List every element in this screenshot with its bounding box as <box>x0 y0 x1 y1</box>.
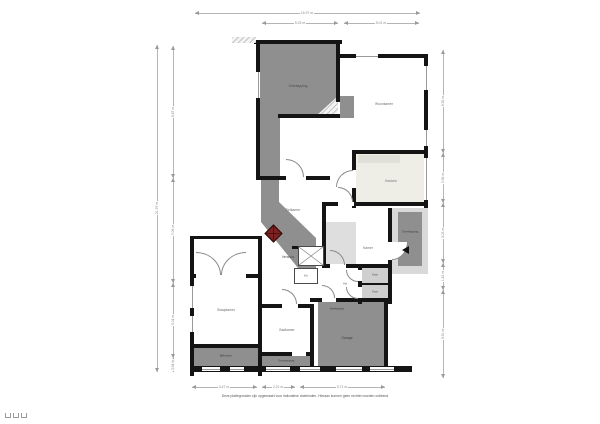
dim-label-left-4: 0.94 m <box>171 359 174 371</box>
room-label-overkapping-bottom: Overkapping <box>278 360 294 363</box>
overkapping-top-area <box>260 44 338 116</box>
wall-segment <box>310 304 314 370</box>
dim-label-bottom-2: 2.22 m <box>272 385 284 388</box>
window <box>424 130 428 146</box>
logo-mark-glyph <box>5 413 11 418</box>
window <box>190 286 194 308</box>
double-door-left-arc <box>196 252 221 275</box>
room-label-kast1: Kast <box>372 274 378 277</box>
floorplan-canvas: Overkapping Woonkamer Keuken Eetkamer Ve… <box>0 0 600 424</box>
keuken-counter <box>358 155 400 163</box>
door-opening <box>358 287 362 298</box>
room-label-bijkeuken: Bijkeuken <box>220 355 232 358</box>
dim-label-right-2: 3.36 m <box>441 172 444 184</box>
wall-segment <box>190 236 260 239</box>
door-arc <box>322 285 335 298</box>
dim-label-bottom-3: 5.71 m <box>336 385 348 388</box>
room-label-eetkamer: Eetkamer <box>286 208 300 211</box>
wall-segment <box>256 40 260 178</box>
room-label-overkapping-right: Overkapping <box>402 231 418 234</box>
room-label-werkplaats: Werkplaats <box>330 308 344 311</box>
door-opening <box>322 298 336 302</box>
dim-label-top-left: 5.23 m <box>294 21 306 24</box>
window <box>256 72 260 98</box>
door-opening <box>292 352 306 356</box>
dim-label-right-1: 6.92 m <box>441 95 444 107</box>
logo-mark-glyph <box>21 413 27 418</box>
wall-segment <box>278 114 340 118</box>
room-label-overkapping-top: Overkapping <box>288 84 307 87</box>
wall-segment <box>336 54 428 58</box>
wall-segment <box>362 283 388 285</box>
room-label-veranda: Veranda <box>282 255 295 258</box>
room-label-kast2: Kast <box>372 291 378 294</box>
window <box>202 367 220 371</box>
wall-segment <box>352 150 428 154</box>
door-opening <box>358 270 362 281</box>
door-opening <box>282 304 298 308</box>
double-door-right-arc <box>221 252 246 275</box>
wall-segment <box>190 344 262 348</box>
window <box>300 367 320 371</box>
door-arc <box>338 187 353 202</box>
window <box>336 367 362 371</box>
overkapping-strip-area <box>260 116 280 178</box>
window <box>356 54 378 58</box>
wall-segment <box>262 352 314 356</box>
door-arc <box>346 270 358 282</box>
overkapping-right-dark <box>398 212 422 266</box>
wall-segment <box>254 40 342 44</box>
room-label-kamer: Kamer <box>363 246 373 249</box>
window <box>424 158 428 200</box>
window <box>190 316 194 332</box>
garage-floor <box>318 302 384 366</box>
room-label-garage: Garage <box>341 336 352 339</box>
logo-mark <box>5 413 27 418</box>
room-label-woonkamer: Woonkamer <box>375 102 393 105</box>
dim-label-bottom-1: 4.47 m <box>218 385 230 388</box>
stairs-cross-box <box>298 246 324 266</box>
wall-segment <box>384 298 388 370</box>
room-label-badkamer: Badkamer <box>279 328 294 331</box>
entrance-arrow-icon <box>402 246 409 254</box>
window <box>424 66 428 90</box>
room-label-hal: Hal <box>343 283 347 286</box>
door-arc <box>282 289 297 304</box>
room-label-slaapkamer: Slaapkamer <box>217 308 235 311</box>
window <box>370 367 394 371</box>
room-label-keuken: Keuken <box>385 179 396 182</box>
door-arc <box>286 159 304 177</box>
door-arc <box>336 170 353 187</box>
wall-segment <box>336 44 340 102</box>
dim-label-left-total: 21.97 m <box>155 201 158 215</box>
window <box>230 367 244 371</box>
disclaimer-caption: Deze plattegronden zijn opgemaakt voor i… <box>222 394 388 397</box>
room-label-wc: Wc <box>304 275 308 278</box>
dim-label-left-3: 5.04 m <box>171 314 174 326</box>
door-opening <box>338 202 354 206</box>
wall-hatch-stub <box>232 37 256 43</box>
dim-label-left-1: 8.87 m <box>171 106 174 118</box>
dim-label-right-3: 4.03 m <box>441 227 444 239</box>
dim-label-top-total: 15.97 m <box>300 11 314 14</box>
window <box>266 367 290 371</box>
dim-label-left-2: 7.06 m <box>171 224 174 236</box>
dim-label-right-4: 1.81 m <box>441 270 444 282</box>
dim-label-top-right: 5.01 m <box>375 21 387 24</box>
chimney-block <box>340 96 354 118</box>
dim-label-right-5: 5.91 m <box>441 328 444 340</box>
logo-mark-glyph <box>13 413 19 418</box>
